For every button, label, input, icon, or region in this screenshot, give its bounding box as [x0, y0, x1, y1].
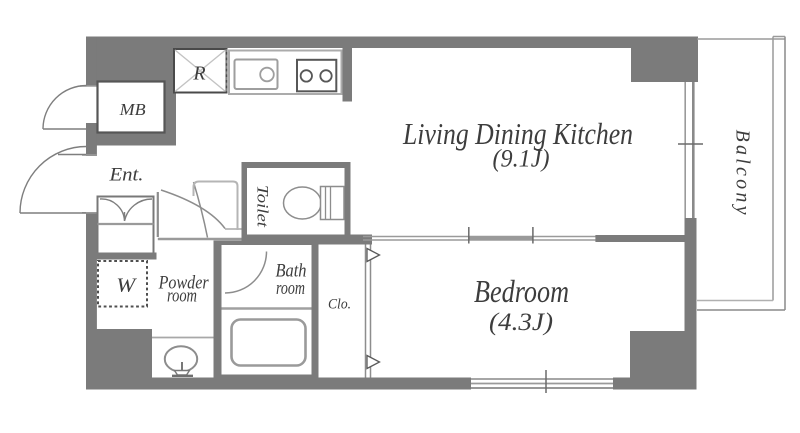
svg-text:room: room: [167, 286, 197, 307]
svg-text:W: W: [116, 275, 138, 297]
svg-text:Bedroom: Bedroom: [474, 274, 569, 309]
svg-text:(9.1J): (9.1J): [493, 146, 550, 173]
svg-text:room: room: [276, 278, 305, 299]
svg-text:R: R: [192, 63, 205, 85]
svg-text:Ent.: Ent.: [108, 165, 143, 186]
svg-text:Toilet: Toilet: [254, 185, 271, 228]
svg-text:MB: MB: [119, 100, 147, 119]
svg-text:Clo.: Clo.: [328, 297, 351, 313]
svg-text:(4.3J): (4.3J): [489, 307, 553, 336]
